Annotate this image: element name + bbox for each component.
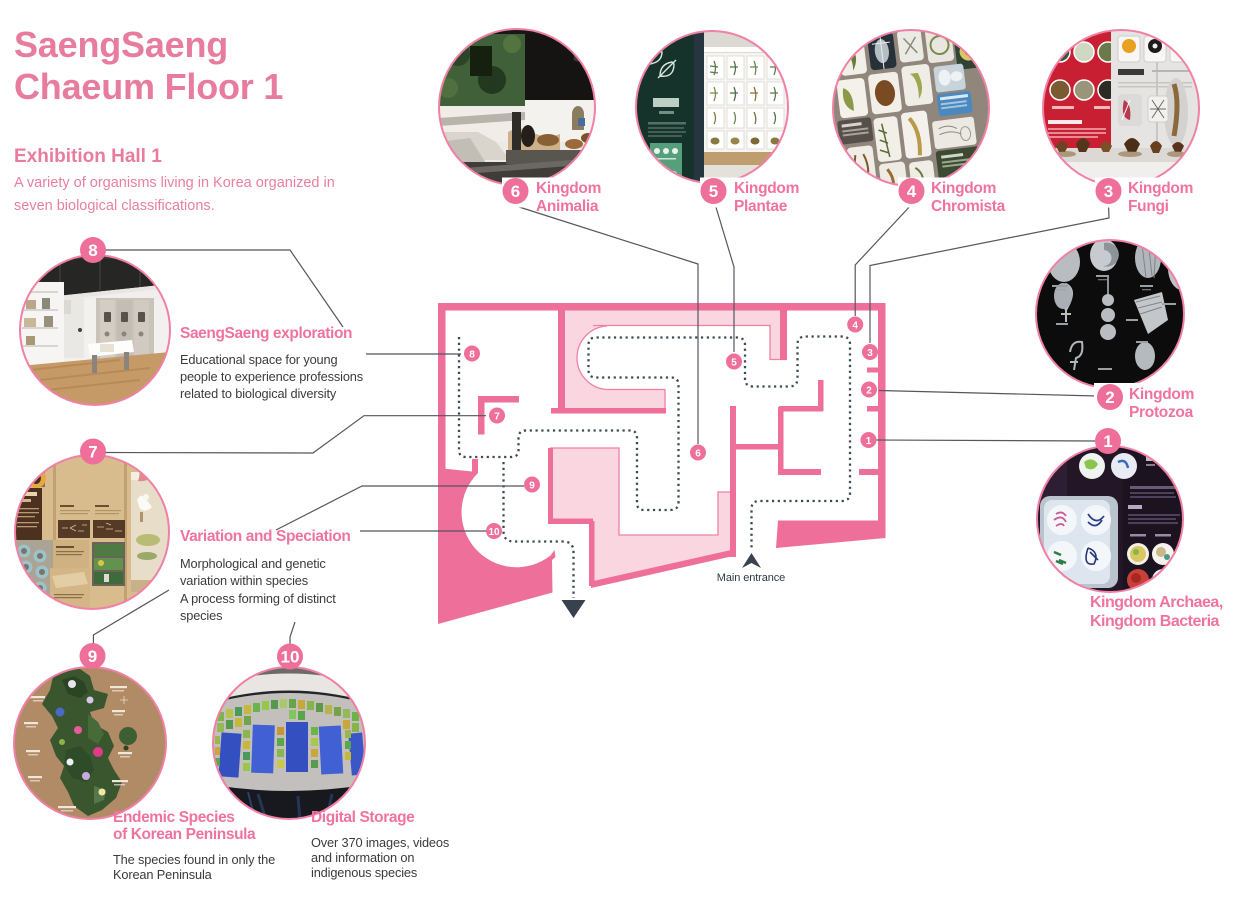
- svg-text:8: 8: [469, 350, 475, 361]
- svg-text:1: 1: [866, 436, 872, 447]
- svg-text:9: 9: [529, 481, 535, 492]
- svg-text:3: 3: [1104, 182, 1113, 201]
- svg-text:6: 6: [511, 182, 520, 201]
- svg-text:6: 6: [695, 449, 701, 460]
- svg-text:8: 8: [88, 241, 97, 260]
- svg-text:5: 5: [709, 182, 718, 201]
- svg-text:4: 4: [852, 321, 858, 332]
- svg-text:9: 9: [88, 647, 97, 666]
- svg-text:4: 4: [907, 182, 917, 201]
- svg-text:7: 7: [88, 443, 97, 462]
- svg-text:1: 1: [1103, 432, 1112, 451]
- svg-text:3: 3: [867, 348, 873, 359]
- svg-text:10: 10: [281, 648, 300, 667]
- svg-text:2: 2: [1105, 388, 1114, 407]
- svg-text:7: 7: [494, 412, 500, 423]
- svg-text:2: 2: [866, 386, 872, 397]
- svg-text:10: 10: [488, 527, 500, 538]
- svg-text:5: 5: [731, 358, 737, 369]
